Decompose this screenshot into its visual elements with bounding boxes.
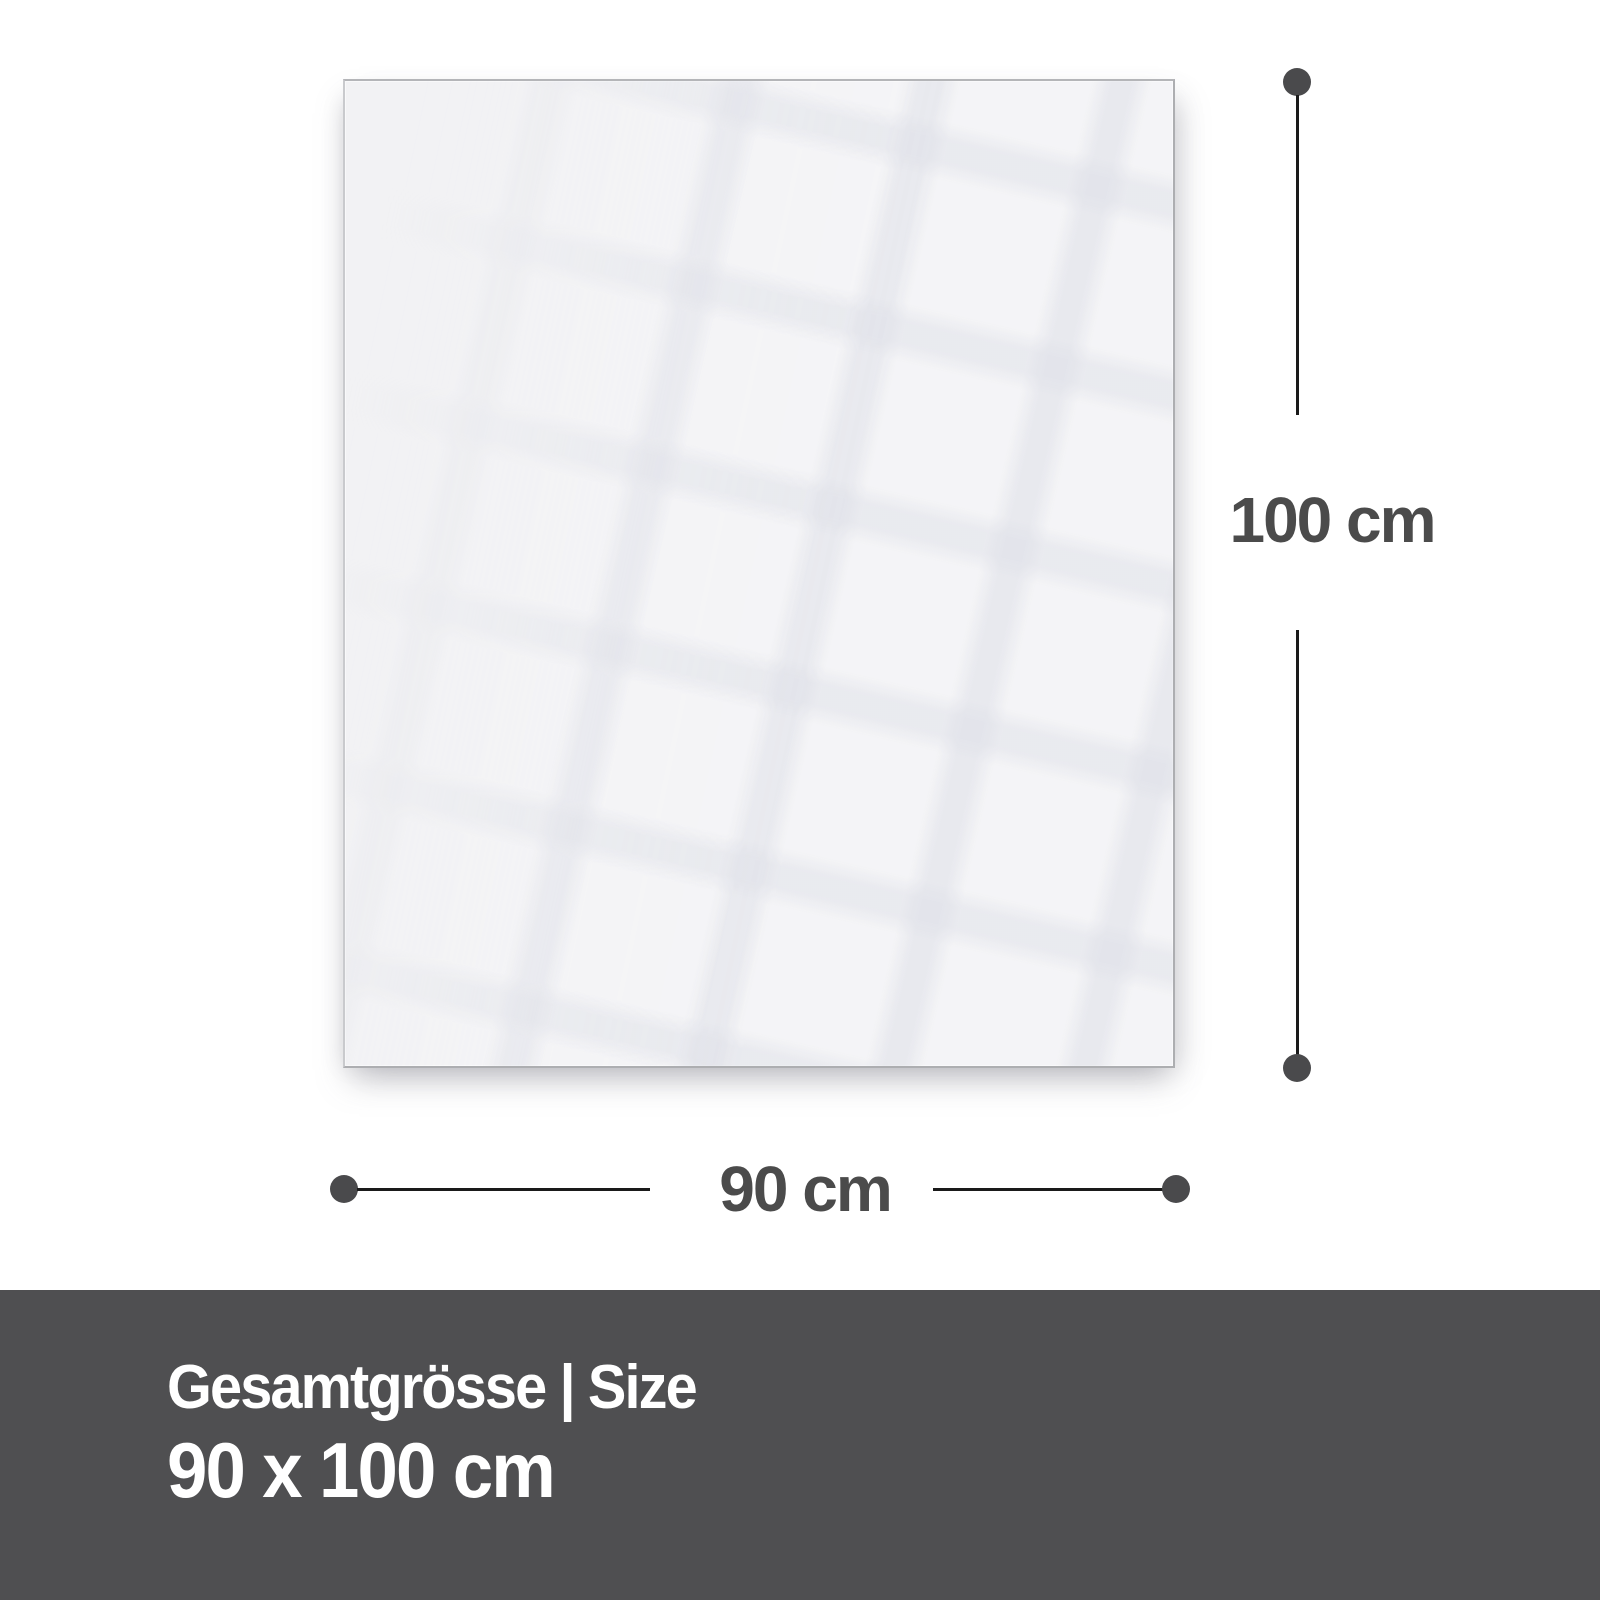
footer-title: Gesamtgrösse | Size — [167, 1354, 696, 1422]
width-dimension-left-dot — [330, 1175, 358, 1203]
width-dimension-label: 90 cm — [655, 1157, 955, 1221]
height-dimension-line-lower — [1296, 630, 1299, 1055]
width-dimension-line-right — [933, 1188, 1163, 1191]
height-dimension-bottom-dot — [1283, 1054, 1311, 1082]
footer-size-value: 90 x 100 cm — [167, 1428, 554, 1514]
height-dimension-label: 100 cm — [1182, 488, 1482, 552]
width-dimension-right-dot — [1162, 1175, 1190, 1203]
panel-reflection — [345, 81, 1173, 1066]
height-dimension-top-dot — [1283, 68, 1311, 96]
window-reflection-grid-icon — [345, 81, 1173, 1066]
footer-bar: Gesamtgrösse | Size 90 x 100 cm — [0, 1290, 1600, 1600]
height-dimension-line-upper — [1296, 95, 1299, 415]
width-dimension-line-left — [357, 1188, 650, 1191]
size-diagram-page: 100 cm 90 cm Gesamtgrösse | Size 90 x 10… — [0, 0, 1600, 1600]
product-panel — [343, 79, 1175, 1068]
